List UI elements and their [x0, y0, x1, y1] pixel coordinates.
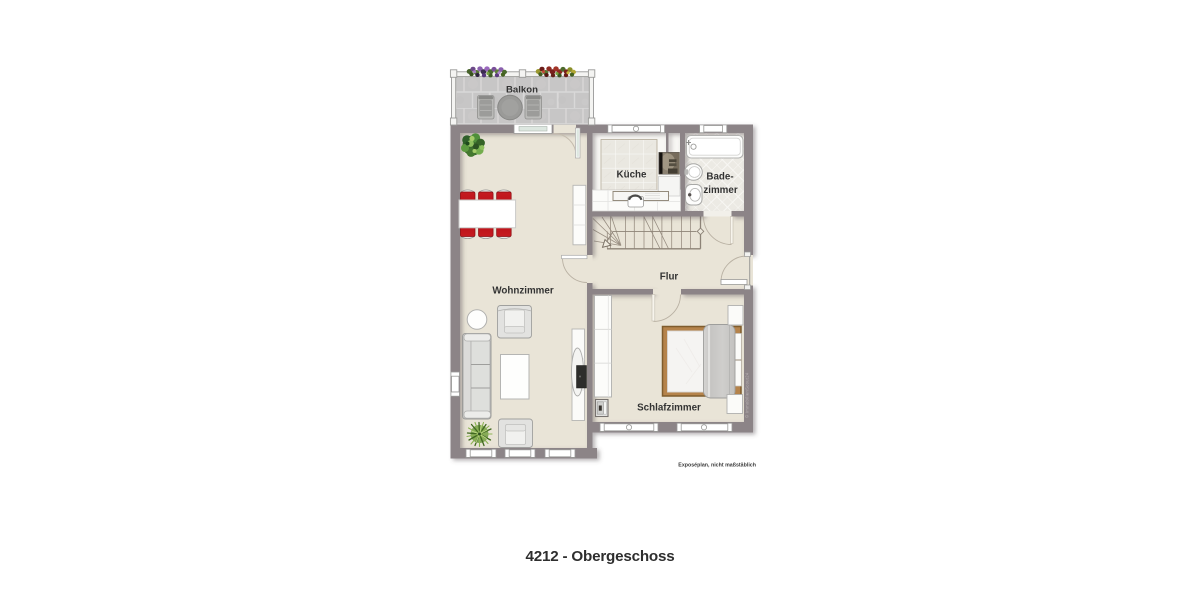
svg-text:zimmer: zimmer — [703, 185, 737, 196]
svg-text:Flur: Flur — [660, 272, 679, 283]
svg-text:Küche: Küche — [617, 170, 647, 181]
svg-text:4212 - Obergeschoss: 4212 - Obergeschoss — [526, 548, 675, 565]
svg-text:Exposéplan, nicht maßstäblich: Exposéplan, nicht maßstäblich — [678, 463, 756, 469]
svg-text:Wohnzimmer: Wohnzimmer — [492, 286, 554, 297]
svg-text:Schlafzimmer: Schlafzimmer — [637, 403, 701, 414]
svg-text:Balkon: Balkon — [506, 85, 538, 96]
svg-text:Bade-: Bade- — [706, 172, 733, 183]
svg-text:© ImmobilienScout24: © ImmobilienScout24 — [745, 372, 750, 418]
